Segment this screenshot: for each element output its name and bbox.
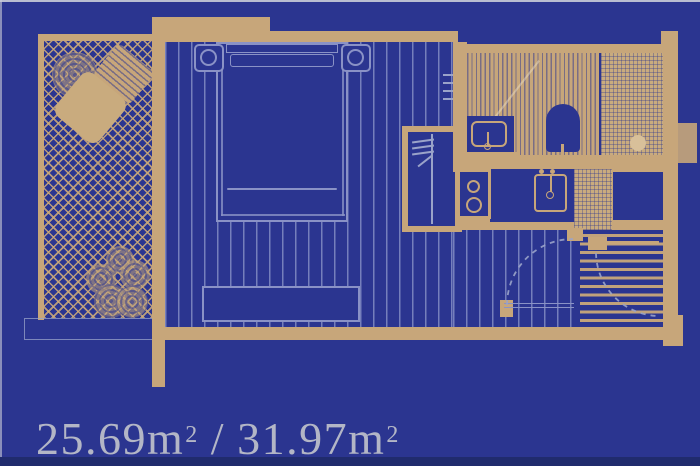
faucet-icon (550, 174, 552, 192)
cooktop-icon (457, 169, 491, 219)
area-label: 25.69m2/31.97m2 (36, 412, 400, 465)
refrigerator (613, 172, 663, 220)
sink-drain-icon (546, 191, 554, 199)
burner-icon (466, 197, 482, 213)
bath-door-tick (443, 90, 453, 92)
door-jamb (567, 228, 583, 241)
wall-divider-bath (453, 42, 467, 172)
top-edge-line (0, 0, 700, 2)
ac-ledge (677, 123, 697, 163)
area-separator: / (211, 413, 225, 464)
left-edge-line (0, 0, 2, 466)
wall-top-left-block (154, 17, 270, 42)
pillows (230, 54, 334, 67)
area-unit: m (348, 413, 385, 464)
bench (202, 286, 360, 322)
wardrobe-rail (431, 134, 433, 224)
wall-top-bathroom (453, 44, 665, 53)
floor-plan: 25.69m2/31.97m2 (0, 0, 700, 466)
net-area-value: 25.69 (36, 413, 147, 464)
bed-inner-line-bottom (221, 214, 345, 216)
double-bed (216, 42, 348, 222)
wall-right (663, 44, 678, 334)
balcony-wall-top (38, 34, 154, 41)
bed-inner-line-left (221, 46, 223, 216)
bath-door-tick (443, 82, 453, 84)
kitchen-hatch-area (574, 169, 612, 230)
nightstand-left (194, 44, 224, 72)
shower-drain-icon (630, 135, 646, 151)
nightstand-right (341, 44, 371, 72)
wall-bottom (165, 327, 670, 340)
wall-left-column (152, 17, 165, 387)
area-unit-exponent: 2 (386, 422, 400, 448)
bath-door-tick (443, 74, 453, 76)
blanket-line (227, 188, 337, 190)
headboard (226, 44, 338, 53)
area-unit: m (147, 413, 184, 464)
faucet-handle-icon (539, 169, 544, 174)
lamp-icon (347, 49, 364, 66)
area-unit-exponent: 2 (185, 422, 199, 448)
entrance-door-leaf (607, 241, 659, 244)
burner-icon (467, 180, 480, 193)
washbasin (466, 116, 514, 154)
toilet (546, 104, 580, 152)
door-leaf (504, 303, 574, 308)
entrance-door-hinge-block (588, 237, 607, 250)
balcony-railing (24, 318, 156, 340)
bath-door-tick (443, 98, 453, 100)
potted-plant-icon (86, 246, 150, 318)
corridor-floor (453, 230, 580, 327)
gross-area-value: 31.97 (237, 413, 348, 464)
lamp-icon (200, 49, 217, 66)
wall-top-bedroom (268, 31, 458, 42)
